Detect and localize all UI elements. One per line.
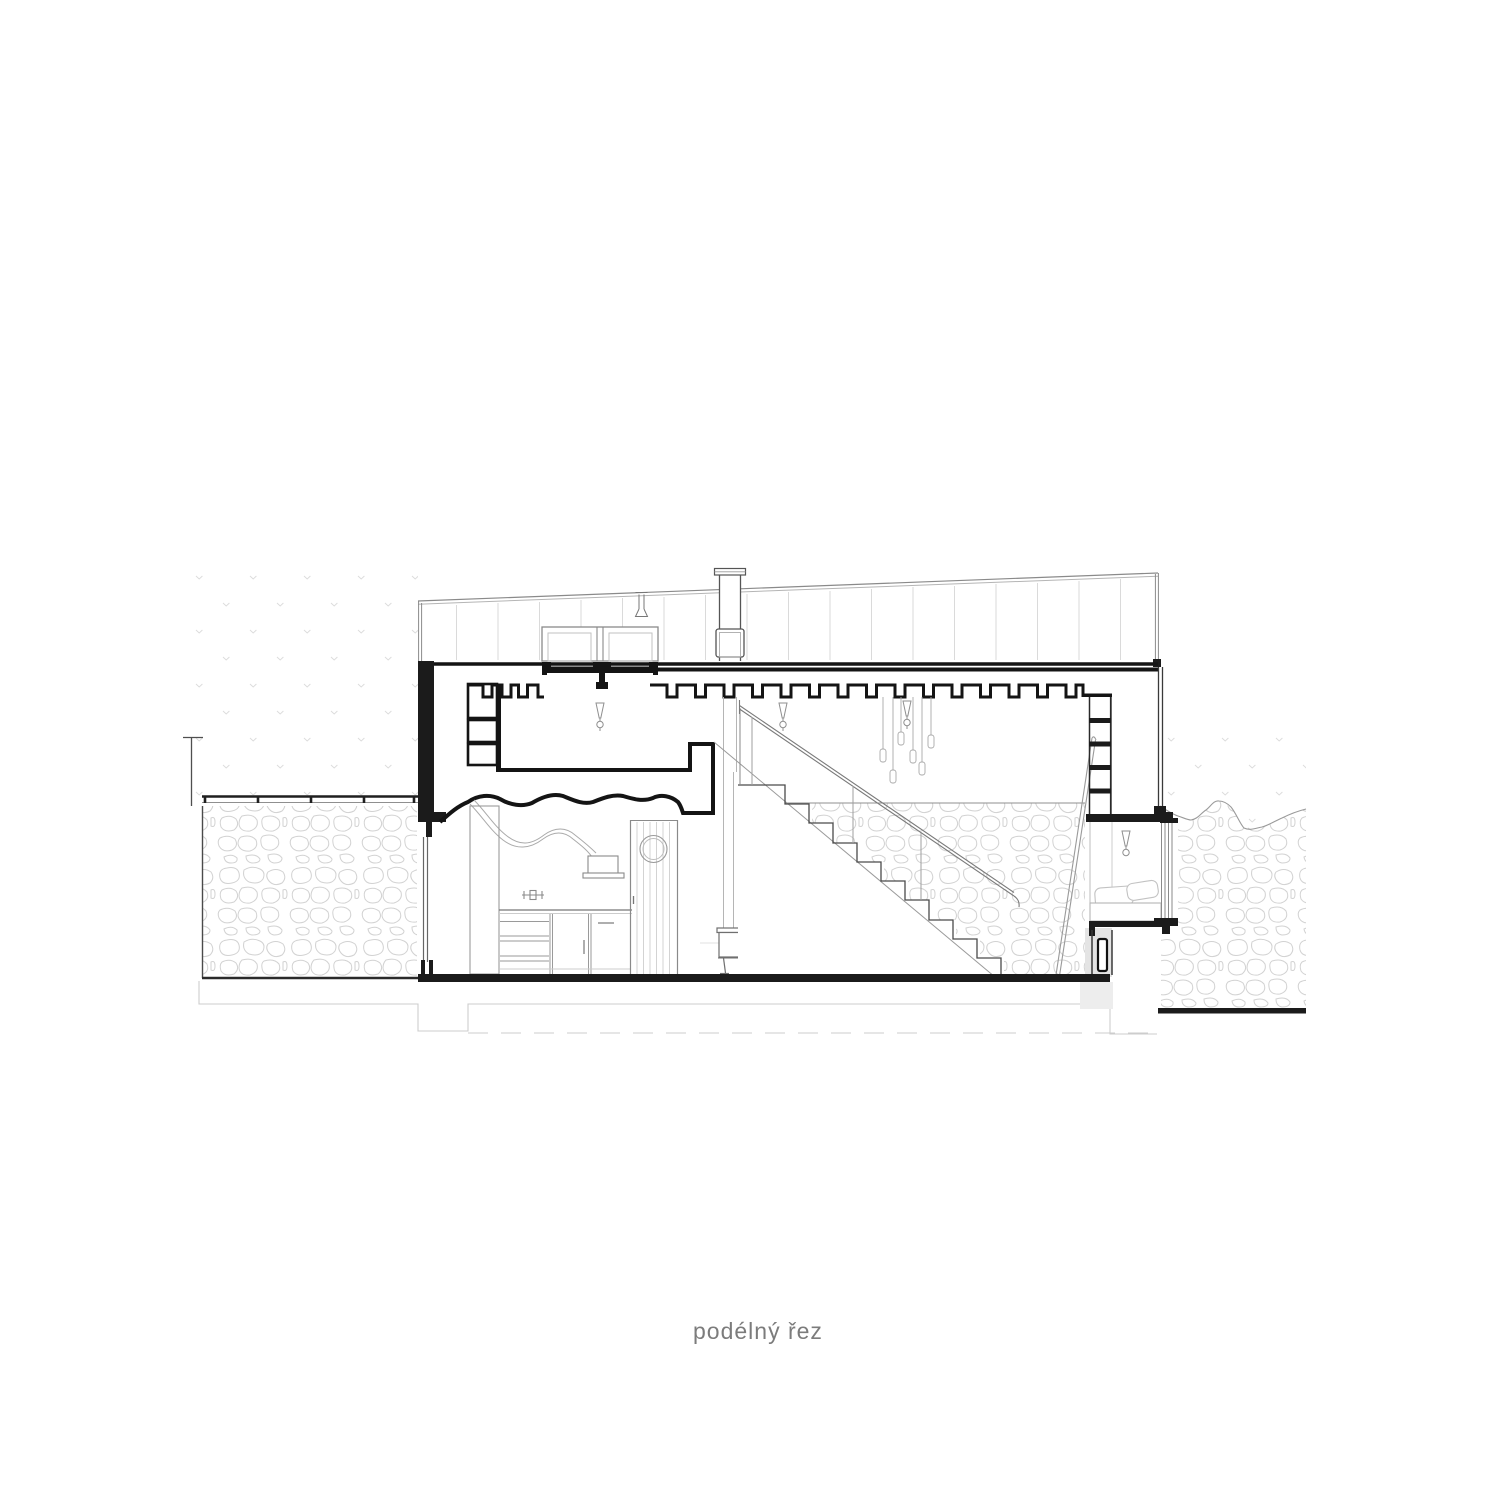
- foundation-under-alcove: [1080, 982, 1113, 1009]
- partition-edge: [496, 684, 501, 772]
- stone-masonry-left: [202, 806, 418, 978]
- chimney: [715, 569, 746, 662]
- main-floor-slab: [418, 974, 1110, 982]
- alcove-lintel-band: [1086, 814, 1166, 822]
- skylight-pair: [542, 627, 658, 661]
- right-exterior-floor: [1158, 1008, 1306, 1014]
- section-drawing-canvas: podélný řez: [0, 0, 1500, 1500]
- drawing-sheet: podélný řez: [0, 0, 1500, 1500]
- stone-masonry-right: [1160, 801, 1306, 1008]
- mattress: [1090, 903, 1161, 921]
- alcove-floor: [1089, 921, 1162, 927]
- drawing-title: podélný řez: [693, 1318, 823, 1344]
- stippled-ground-left: [192, 556, 418, 796]
- extractor-hood: [583, 856, 624, 878]
- door-in-section: [1098, 939, 1107, 971]
